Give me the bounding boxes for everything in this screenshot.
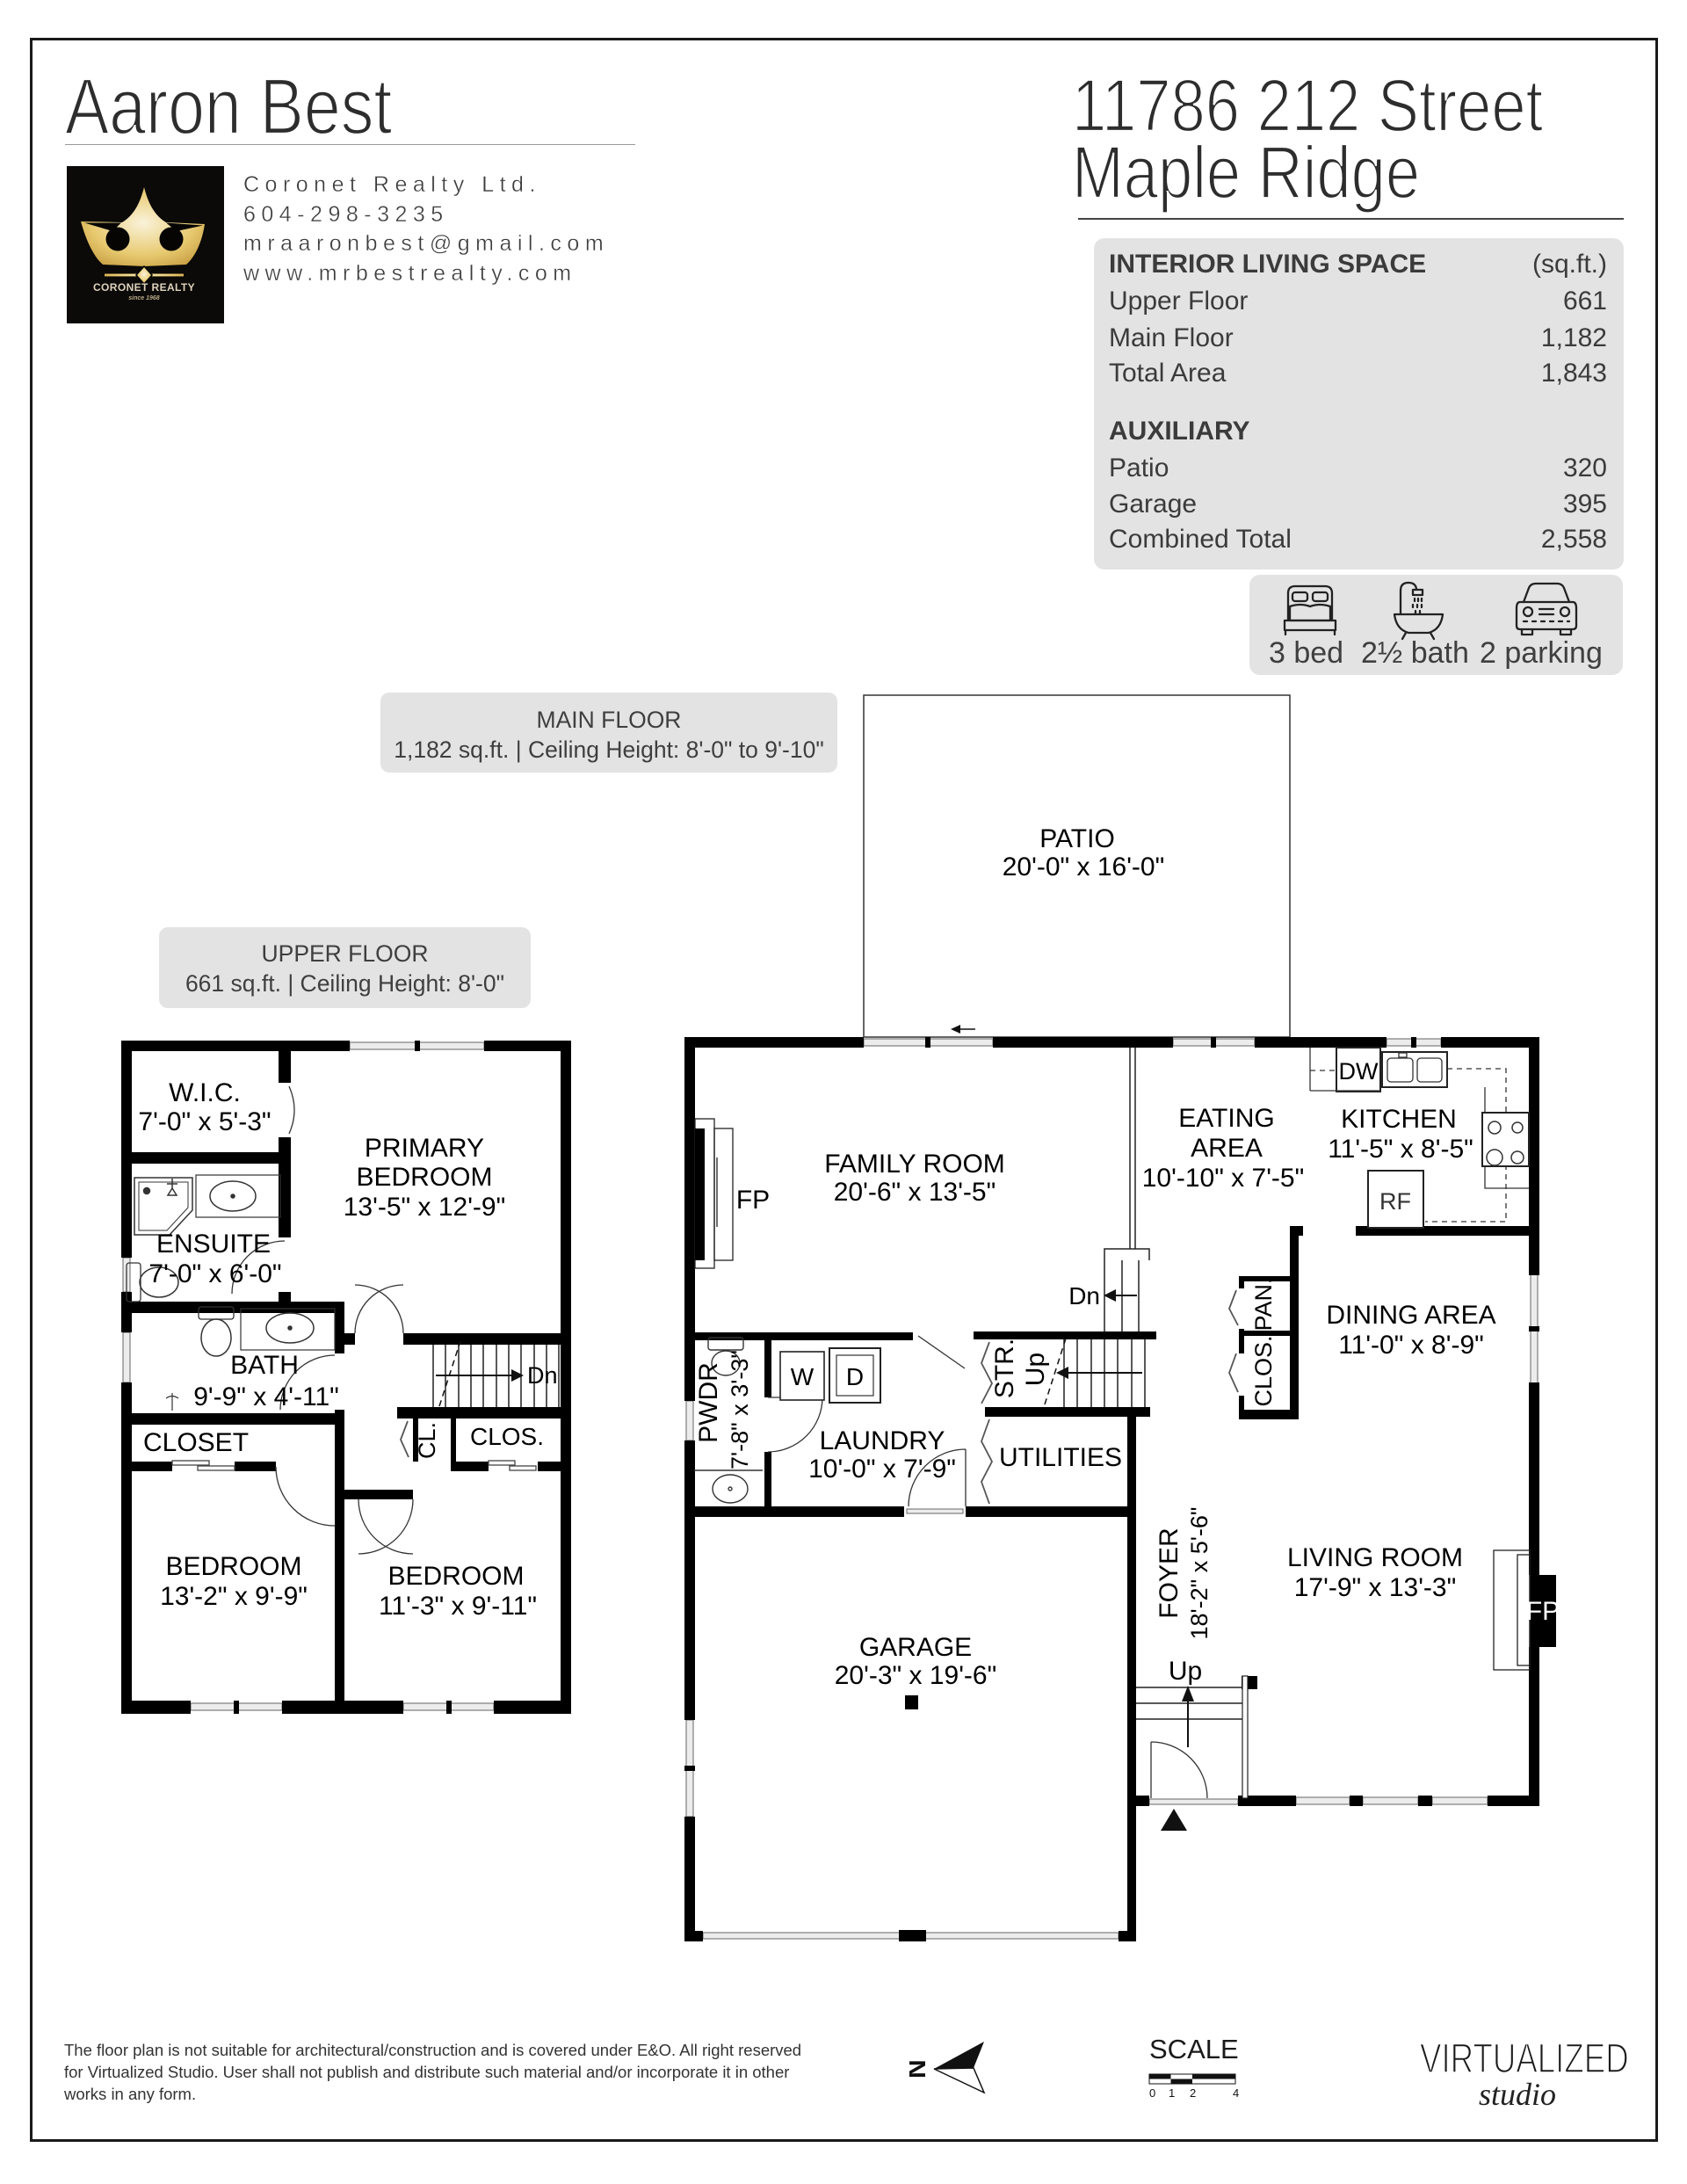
svg-text:4: 4 [1233, 2086, 1239, 2100]
svg-text:11'-5" x 8'-5": 11'-5" x 8'-5" [1328, 1135, 1473, 1164]
svg-text:CLOSET: CLOSET [143, 1428, 249, 1457]
svg-text:KITCHEN: KITCHEN [1341, 1105, 1457, 1134]
svg-text:since 1968: since 1968 [128, 295, 160, 301]
svg-text:10'-10" x 7'-5": 10'-10" x 7'-5" [1142, 1164, 1305, 1193]
svg-text:N: N [909, 2059, 931, 2079]
svg-text:BEDROOM: BEDROOM [356, 1163, 492, 1192]
svg-text:LIVING ROOM: LIVING ROOM [1287, 1543, 1463, 1572]
svg-text:CLOS.: CLOS. [1250, 1335, 1277, 1406]
svg-text:CL.: CL. [414, 1422, 440, 1459]
svg-text:11'-3" x 9'-11": 11'-3" x 9'-11" [379, 1592, 537, 1621]
svg-text:FAMILY ROOM: FAMILY ROOM [824, 1150, 1005, 1179]
svg-text:20'-3" x 19'-6": 20'-3" x 19'-6" [835, 1661, 997, 1690]
svg-text:GARAGE: GARAGE [859, 1633, 972, 1662]
svg-text:LAUNDRY: LAUNDRY [820, 1426, 945, 1455]
svg-text:FP: FP [1526, 1597, 1560, 1626]
svg-text:PAN.: PAN. [1250, 1277, 1277, 1331]
svg-text:7'-0" x 5'-3": 7'-0" x 5'-3" [138, 1107, 271, 1136]
svg-text:DINING AREA: DINING AREA [1326, 1301, 1495, 1330]
svg-text:UTILITIES: UTILITIES [999, 1443, 1122, 1472]
svg-text:FOYER: FOYER [1155, 1527, 1184, 1618]
svg-text:1: 1 [1169, 2086, 1175, 2100]
svg-text:FP: FP [736, 1186, 770, 1215]
svg-text:DW: DW [1339, 1058, 1379, 1085]
svg-text:CLOS.: CLOS. [470, 1423, 544, 1450]
svg-text:W: W [791, 1363, 815, 1390]
svg-text:13'-5" x 12'-9": 13'-5" x 12'-9" [344, 1193, 506, 1222]
svg-text:BEDROOM: BEDROOM [165, 1552, 301, 1581]
svg-text:13'-2" x 9'-9": 13'-2" x 9'-9" [160, 1582, 308, 1611]
svg-text:BEDROOM: BEDROOM [387, 1562, 524, 1591]
svg-text:D: D [846, 1363, 864, 1390]
svg-text:Up: Up [1021, 1353, 1050, 1386]
svg-text:ENSUITE: ENSUITE [156, 1230, 271, 1259]
svg-text:2: 2 [1190, 2086, 1196, 2100]
svg-text:AREA: AREA [1191, 1134, 1263, 1163]
svg-text:20'-0" x 16'-0": 20'-0" x 16'-0" [1003, 853, 1165, 882]
svg-text:7'-0" x 6'-0": 7'-0" x 6'-0" [148, 1259, 281, 1288]
svg-text:W.I.C.: W.I.C. [169, 1078, 241, 1107]
svg-text:EATING: EATING [1178, 1104, 1274, 1133]
svg-text:RF: RF [1379, 1188, 1411, 1215]
svg-text:11'-0" x 8'-9": 11'-0" x 8'-9" [1338, 1331, 1484, 1360]
svg-text:PATIO: PATIO [1039, 824, 1115, 853]
svg-text:PRIMARY: PRIMARY [365, 1134, 484, 1163]
svg-text:BATH: BATH [230, 1351, 299, 1380]
svg-text:17'-9" x 13'-3": 17'-9" x 13'-3" [1294, 1573, 1457, 1602]
svg-text:Dn: Dn [527, 1362, 558, 1389]
svg-text:20'-6" x 13'-5": 20'-6" x 13'-5" [834, 1178, 996, 1207]
svg-text:18'-2" x 5'-6": 18'-2" x 5'-6" [1186, 1506, 1213, 1639]
svg-text:10'-0" x 7'-9": 10'-0" x 7'-9" [808, 1455, 956, 1484]
svg-text:7'-8" x 3'-3": 7'-8" x 3'-3" [727, 1350, 753, 1469]
svg-text:CORONET REALTY: CORONET REALTY [93, 281, 195, 294]
svg-text:PWDR: PWDR [694, 1362, 723, 1443]
svg-text:STR.: STR. [990, 1339, 1019, 1398]
svg-text:Up: Up [1169, 1657, 1202, 1686]
svg-text:Dn: Dn [1068, 1282, 1100, 1310]
svg-text:9'-9" x 4'-11": 9'-9" x 4'-11" [193, 1382, 339, 1411]
svg-text:0: 0 [1149, 2086, 1155, 2100]
